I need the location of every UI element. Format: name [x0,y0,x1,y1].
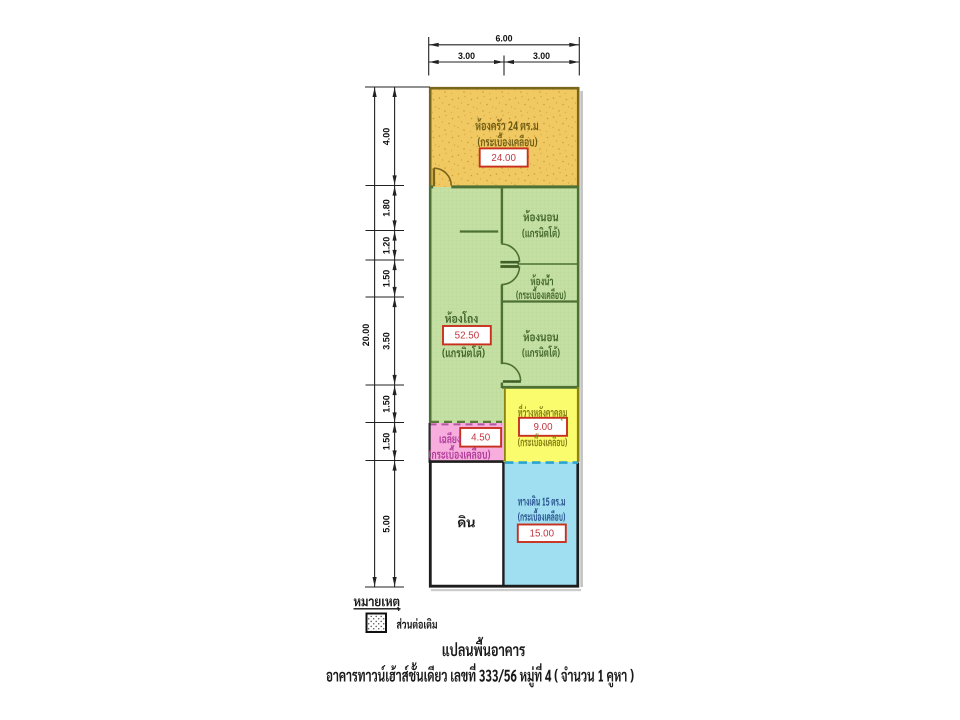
svg-text:9.00: 9.00 [533,422,553,433]
svg-text:3.00: 3.00 [533,51,550,61]
svg-text:15.00: 15.00 [530,529,555,540]
svg-text:3.50: 3.50 [381,332,391,350]
svg-text:3.00: 3.00 [458,51,475,61]
svg-text:1.50: 1.50 [381,270,391,288]
svg-text:6.00: 6.00 [495,34,512,44]
svg-text:5.00: 5.00 [381,515,391,533]
svg-text:4.50: 4.50 [471,433,491,444]
svg-text:1.50: 1.50 [381,433,391,451]
svg-text:4.00: 4.00 [381,128,391,146]
svg-text:1.50: 1.50 [381,395,391,413]
svg-text:1.20: 1.20 [381,237,391,255]
svg-text:52.50: 52.50 [455,331,480,342]
svg-text:1.80: 1.80 [381,199,391,217]
svg-text:24.00: 24.00 [491,153,516,164]
svg-text:20.00: 20.00 [361,324,371,347]
